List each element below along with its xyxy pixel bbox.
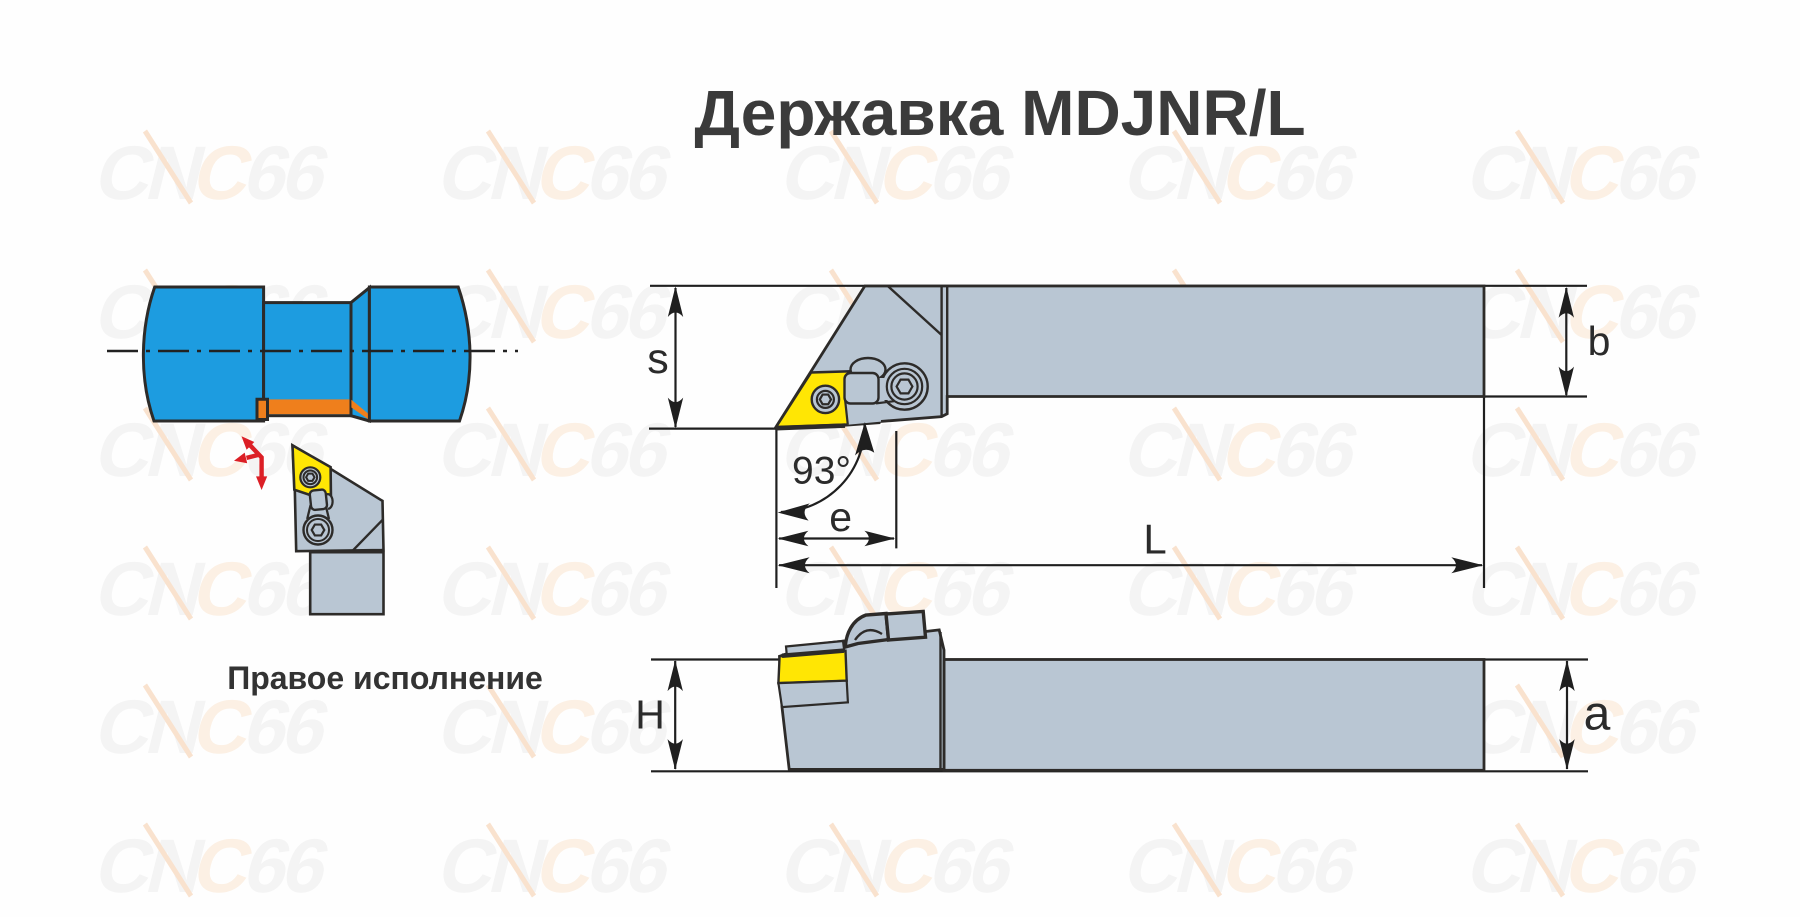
svg-text:a: a xyxy=(1584,688,1611,741)
svg-text:e: e xyxy=(829,494,852,540)
svg-text:b: b xyxy=(1588,318,1611,364)
svg-text:L: L xyxy=(1143,515,1166,562)
svg-text:93°: 93° xyxy=(792,450,851,493)
svg-text:s: s xyxy=(647,335,669,383)
svg-text:Державка MDJNR/L: Державка MDJNR/L xyxy=(694,77,1305,149)
svg-text:H: H xyxy=(635,691,665,737)
svg-text:Правое исполнение: Правое исполнение xyxy=(227,660,543,696)
